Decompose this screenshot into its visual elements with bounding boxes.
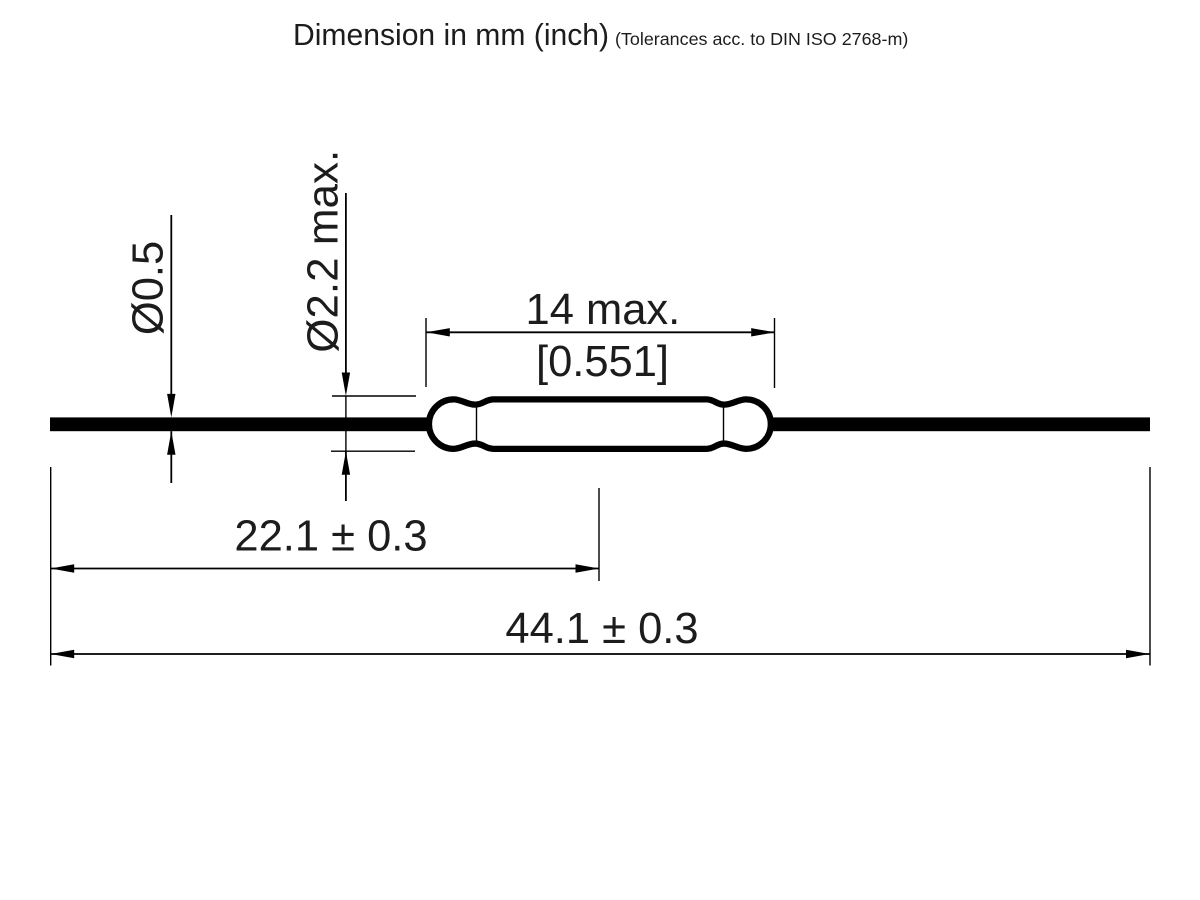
svg-text:(Tolerances acc. to DIN ISO 27: (Tolerances acc. to DIN ISO 2768-m) xyxy=(615,29,908,49)
svg-text:22.1 ± 0.3: 22.1 ± 0.3 xyxy=(234,513,427,561)
svg-text:14 max.: 14 max. xyxy=(526,286,681,334)
svg-text:[0.551]: [0.551] xyxy=(536,338,669,386)
svg-text:Ø2.2 max.: Ø2.2 max. xyxy=(299,150,348,353)
svg-text:Dimension in mm (inch): Dimension in mm (inch) xyxy=(293,19,609,52)
svg-text:44.1 ± 0.3: 44.1 ± 0.3 xyxy=(505,605,698,653)
svg-text:Ø0.5: Ø0.5 xyxy=(125,241,173,335)
